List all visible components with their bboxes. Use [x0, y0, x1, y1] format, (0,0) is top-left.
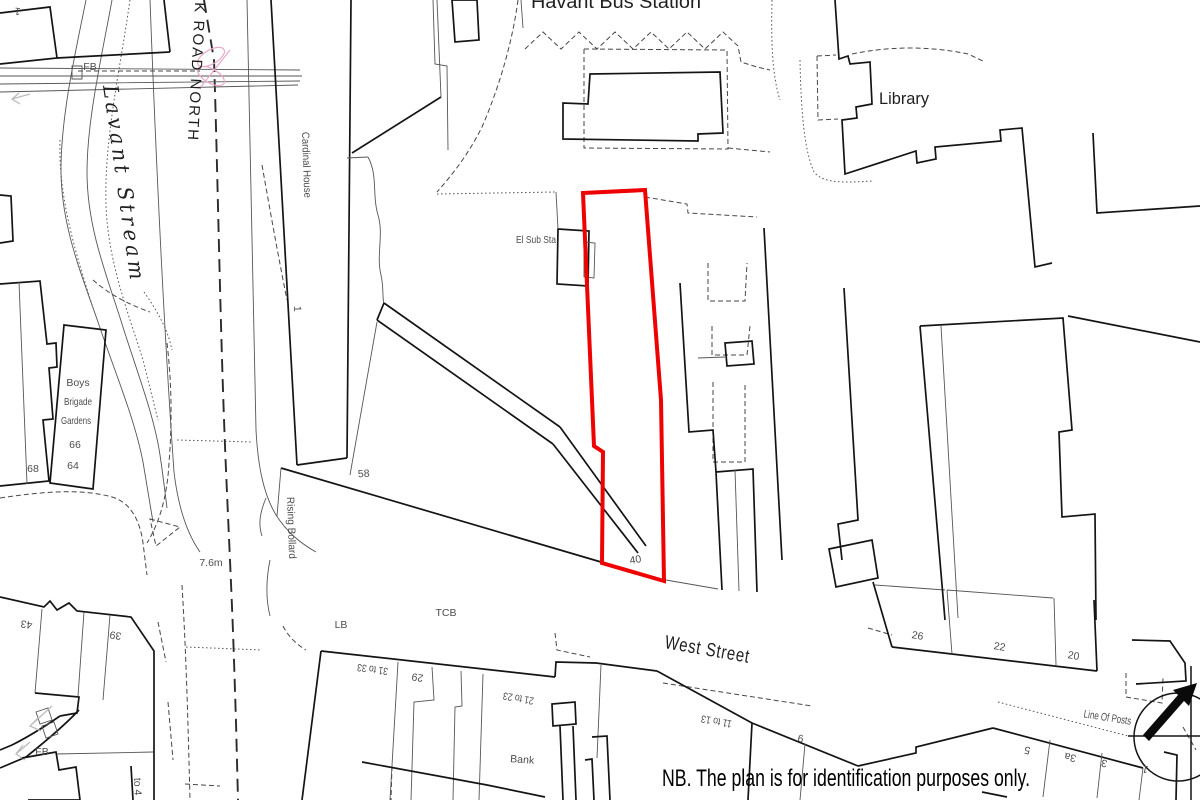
map-label-n58: 58 [358, 468, 371, 481]
map-label-gardens: Gardens [61, 415, 91, 427]
map-label-n11-13: 11 to 13 [700, 712, 733, 729]
map-label-n40: 40 [629, 553, 643, 567]
map-label-cardinal-1: 1 [291, 306, 303, 312]
map-label-n64: 64 [67, 460, 79, 472]
map-labels-layer: Havant Bus StationLibraryPARK ROAD NORTH… [14, 0, 1150, 796]
map-label-boys: Boys [66, 377, 89, 389]
map-label-n31-33: 31 to 33 [356, 661, 388, 677]
map-label-line-of-posts: Line Of Posts [1083, 708, 1133, 727]
map-label-library: Library [879, 89, 929, 108]
location-plan: Havant Bus StationLibraryPARK ROAD NORTH… [0, 0, 1200, 800]
map-label-n20: 20 [1067, 649, 1081, 663]
map-label-n5: 5 [1023, 743, 1032, 756]
map-label-fb-top: FB [83, 61, 96, 73]
map-label-brigade: Brigade [64, 396, 92, 408]
map-label-n68: 68 [27, 463, 39, 475]
map-label-n66: 66 [69, 439, 81, 451]
bus-station-building [563, 72, 723, 141]
building-outlines [0, 0, 1200, 800]
boundary-lines [0, 0, 1196, 800]
north-arrow-icon [1128, 666, 1200, 800]
map-label-n21-23: 21 to 23 [502, 689, 535, 706]
map-label-rising-bollard: Rising Bollard [284, 497, 298, 560]
map-label-n43: 43 [20, 617, 33, 631]
bus-station-canopy-zigzag [525, 32, 770, 70]
road-lines [150, 0, 316, 800]
boundary-long-dash [204, 0, 238, 800]
map-label-el-sub-sta: El Sub Sta [516, 234, 556, 246]
map-label-park-road-north: PARK ROAD NORTH [184, 0, 210, 142]
map-label-top-1: 1 [14, 5, 22, 18]
map-label-bench-76m: 7.6m [199, 557, 223, 569]
map-label-n1: 1 [1141, 762, 1150, 775]
map-label-n22: 22 [993, 640, 1007, 654]
map-label-tcb: TCB [436, 607, 457, 619]
map-label-fb-bottom: FB [35, 746, 48, 758]
map-label-havant-bus-station: Havant Bus Station [531, 0, 701, 13]
footbridge-top [72, 66, 82, 79]
map-label-n26: 26 [911, 629, 925, 643]
map-label-west-street: West Street [663, 632, 751, 668]
map-label-n3a: 3a [1063, 750, 1077, 764]
map-label-plan-note: NB. The plan is for identification purpo… [662, 765, 1030, 792]
map-label-n29: 29 [411, 670, 424, 684]
map-label-lb: LB [335, 619, 348, 631]
map-canvas: Havant Bus StationLibraryPARK ROAD NORTH… [0, 0, 1200, 800]
map-label-n39: 39 [109, 628, 122, 642]
map-label-bank: Bank [510, 753, 535, 767]
stream-lines [12, 0, 172, 522]
library-building [835, 0, 1052, 267]
map-label-to4: to 4 [131, 778, 144, 796]
map-label-cardinal-house: Cardinal House [299, 132, 313, 199]
